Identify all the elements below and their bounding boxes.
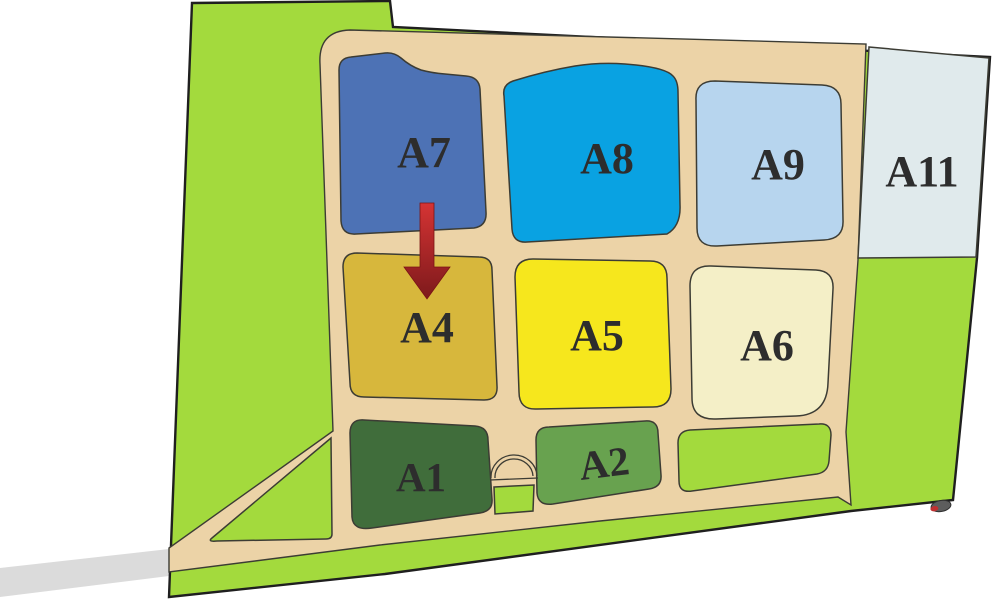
arch-strip	[494, 485, 534, 514]
plot-a7-label: A7	[397, 128, 451, 177]
plot-a8-label: A8	[580, 134, 634, 183]
plot-a2-label: A2	[576, 437, 631, 489]
plot-a11-label: A11	[885, 147, 958, 196]
site-plan-map: A7 A8 A9 A11 A4 A5 A6 A1 A2	[0, 0, 997, 602]
plot-a4-label: A4	[400, 303, 454, 352]
plot-a6-label: A6	[740, 321, 794, 370]
plot-a1-label: A1	[396, 454, 446, 500]
plot-a5-label: A5	[570, 311, 624, 360]
plot-a9-label: A9	[751, 140, 805, 189]
